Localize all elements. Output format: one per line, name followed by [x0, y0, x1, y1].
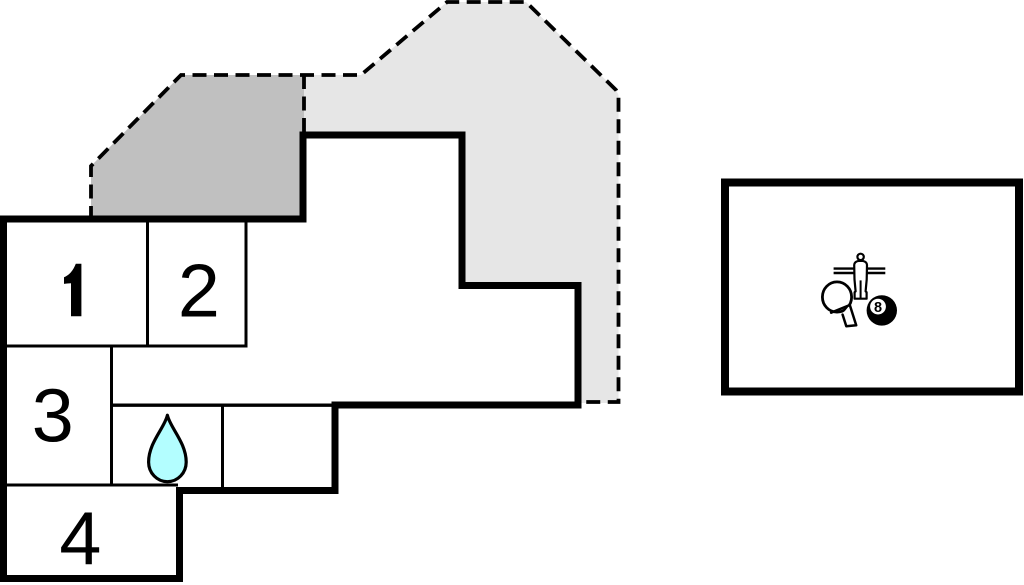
- svg-text:2: 2: [178, 249, 220, 333]
- svg-text:4: 4: [59, 496, 101, 580]
- svg-text:8: 8: [874, 300, 882, 316]
- svg-text:3: 3: [32, 374, 74, 458]
